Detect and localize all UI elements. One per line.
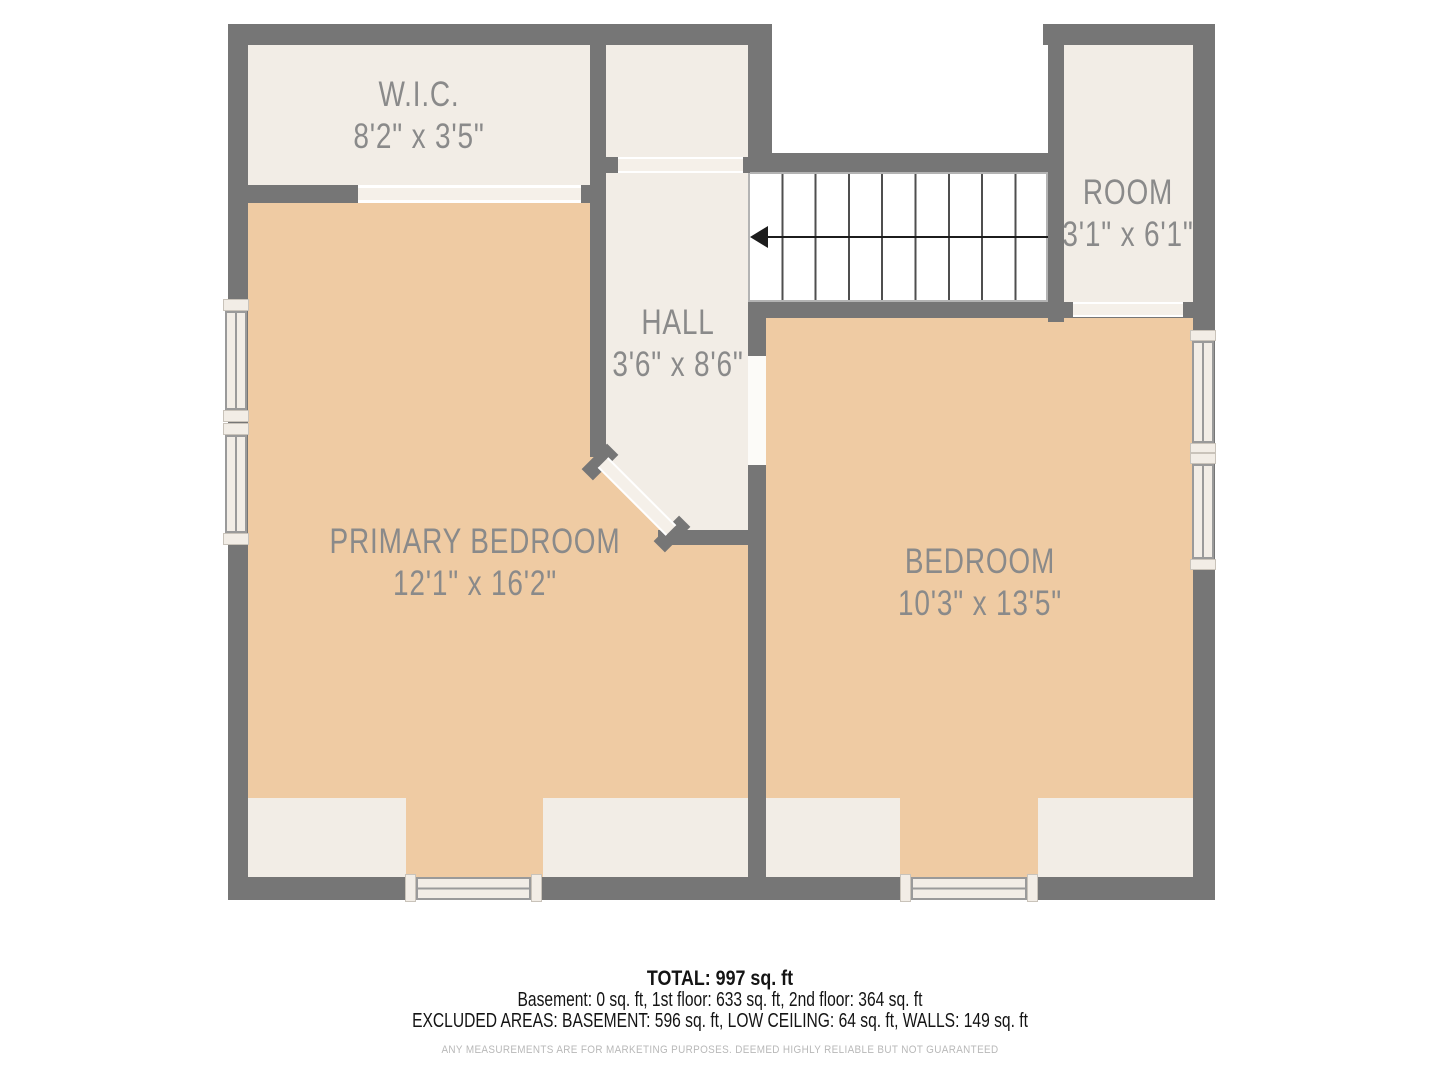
wall-between-bedrooms-lower: [748, 465, 766, 877]
window-sill: [900, 874, 911, 902]
window-sill: [1190, 559, 1216, 570]
window-sill: [1190, 443, 1216, 453]
wall-room-top: [1043, 24, 1215, 45]
room-label-bedroom: BEDROOM 10'3" x 13'5": [820, 541, 1140, 625]
window-sill: [1190, 453, 1216, 464]
wic-door: [358, 186, 581, 202]
footer-disclaimer: ANY MEASUREMENTS ARE FOR MARKETING PURPO…: [72, 1044, 1368, 1056]
room-name: W.I.C.: [259, 74, 579, 116]
low-ceiling-area: [248, 798, 406, 877]
room-dims: 8'2" x 3'5": [259, 116, 579, 158]
window-sill: [1027, 874, 1038, 902]
wall-top: [228, 24, 772, 45]
room-label-primary-bedroom: PRIMARY BEDROOM 12'1" x 16'2": [315, 521, 635, 605]
bedroom-door-opening: [748, 356, 766, 465]
room-dims: 10'3" x 13'5": [820, 583, 1140, 625]
window-sill: [531, 874, 542, 902]
wall-between-bedrooms-upper: [748, 318, 766, 356]
stairs-arrow-head-icon: [750, 226, 768, 248]
room-door: [1073, 302, 1183, 317]
room-dims: 3'1" x 6'1": [968, 214, 1288, 256]
low-ceiling-area: [543, 798, 748, 877]
window-sill: [223, 423, 249, 435]
room-name: BEDROOM: [820, 541, 1140, 583]
room-dims: 3'6" x 8'6": [518, 344, 838, 386]
hall-floor: [606, 45, 748, 530]
wall-hall-left: [590, 45, 606, 457]
window: [416, 877, 531, 900]
low-ceiling-area: [766, 798, 900, 877]
wall-hall-outer-right: [748, 45, 772, 157]
window-sill: [1190, 330, 1216, 341]
window: [1192, 341, 1214, 443]
room-label-wic: W.I.C. 8'2" x 3'5": [259, 74, 579, 158]
low-ceiling-area: [1038, 798, 1193, 877]
hall-top-door: [618, 157, 743, 173]
footer-excluded-areas: EXCLUDED AREAS: BASEMENT: 596 sq. ft, LO…: [158, 1010, 1281, 1033]
room-name: ROOM: [968, 172, 1288, 214]
window: [911, 877, 1027, 900]
footer-total: TOTAL: 997 sq. ft: [108, 967, 1332, 991]
window-sill: [223, 410, 249, 422]
window-sill: [223, 533, 249, 545]
room-label-room: ROOM 3'1" x 6'1": [968, 172, 1288, 256]
window: [225, 435, 247, 533]
window-sill: [223, 299, 249, 311]
room-name: PRIMARY BEDROOM: [315, 521, 635, 563]
window: [225, 311, 247, 410]
floor-plan: W.I.C. 8'2" x 3'5" HALL 3'6" x 8'6" ROOM…: [0, 0, 1440, 1080]
window-sill: [405, 874, 416, 902]
room-dims: 12'1" x 16'2": [315, 563, 635, 605]
wall-bottom: [228, 877, 1215, 900]
footer-floor-areas: Basement: 0 sq. ft, 1st floor: 633 sq. f…: [158, 989, 1281, 1012]
wall-room-left: [1048, 24, 1064, 322]
wall-wic-bottom-left: [228, 185, 358, 203]
window: [1192, 464, 1214, 559]
wall-stairs-top: [748, 153, 1064, 172]
